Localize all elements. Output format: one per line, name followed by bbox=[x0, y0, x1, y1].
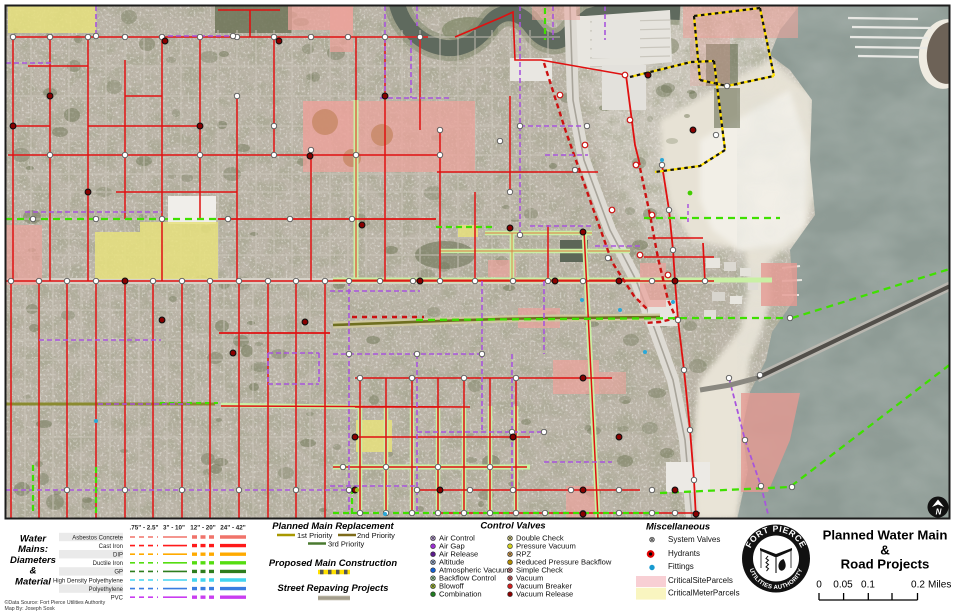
svg-text:Proposed Main Construction: Proposed Main Construction bbox=[269, 557, 397, 568]
svg-text:3" - 10": 3" - 10" bbox=[163, 525, 185, 532]
svg-text:Street Repaving Projects: Street Repaving Projects bbox=[278, 582, 389, 593]
svg-text:CriticalMeterParcels: CriticalMeterParcels bbox=[668, 589, 740, 598]
svg-text:0.05: 0.05 bbox=[833, 580, 853, 591]
svg-text:Water: Water bbox=[20, 534, 48, 545]
svg-text:.75" - 2.5": .75" - 2.5" bbox=[129, 525, 158, 532]
svg-text:Diameters: Diameters bbox=[10, 555, 56, 566]
svg-text:Cast Iron: Cast Iron bbox=[99, 544, 123, 550]
svg-text:DIP: DIP bbox=[113, 553, 123, 559]
svg-text:Miscellaneous: Miscellaneous bbox=[646, 521, 710, 532]
svg-text:GP: GP bbox=[114, 570, 123, 576]
svg-text:Planned Water Main: Planned Water Main bbox=[823, 528, 948, 543]
svg-text:&: & bbox=[30, 566, 37, 577]
svg-text:Map By: Joseph Sosk: Map By: Joseph Sosk bbox=[5, 606, 56, 612]
svg-text:0.2: 0.2 bbox=[911, 580, 925, 591]
svg-text:Polyethylene: Polyethylene bbox=[89, 587, 124, 593]
svg-text:Planned Main Replacement: Planned Main Replacement bbox=[272, 520, 394, 531]
svg-text:Hydrants: Hydrants bbox=[668, 549, 700, 558]
svg-text:Material: Material bbox=[15, 576, 51, 587]
svg-text:24" - 42": 24" - 42" bbox=[220, 525, 246, 532]
svg-text:Control Valves: Control Valves bbox=[480, 520, 545, 531]
svg-text:Asbestos Concrete: Asbestos Concrete bbox=[72, 535, 123, 541]
svg-text:0.1: 0.1 bbox=[861, 580, 875, 591]
svg-text:Fittings: Fittings bbox=[668, 562, 694, 571]
svg-text:&: & bbox=[880, 543, 890, 558]
svg-text:Road Projects: Road Projects bbox=[841, 557, 930, 572]
svg-text:PVC: PVC bbox=[111, 596, 124, 602]
svg-text:Miles: Miles bbox=[928, 580, 951, 591]
svg-text:Combination: Combination bbox=[439, 590, 482, 599]
svg-text:Mains:: Mains: bbox=[18, 544, 48, 555]
svg-text:CriticalSiteParcels: CriticalSiteParcels bbox=[668, 576, 733, 585]
svg-text:High Density Polyethylene: High Density Polyethylene bbox=[53, 578, 124, 584]
svg-text:Vacuum Release: Vacuum Release bbox=[516, 590, 573, 599]
svg-text:N: N bbox=[936, 508, 942, 517]
svg-text:Ductile Iron: Ductile Iron bbox=[93, 561, 123, 567]
svg-text:©Data Source: Fort Pierce Util: ©Data Source: Fort Pierce Utilities Auth… bbox=[5, 599, 106, 606]
svg-text:12" - 20": 12" - 20" bbox=[190, 525, 216, 532]
svg-text:3rd Priority: 3rd Priority bbox=[328, 540, 365, 549]
svg-text:System Valves: System Valves bbox=[668, 535, 720, 544]
svg-text:0: 0 bbox=[816, 580, 822, 591]
